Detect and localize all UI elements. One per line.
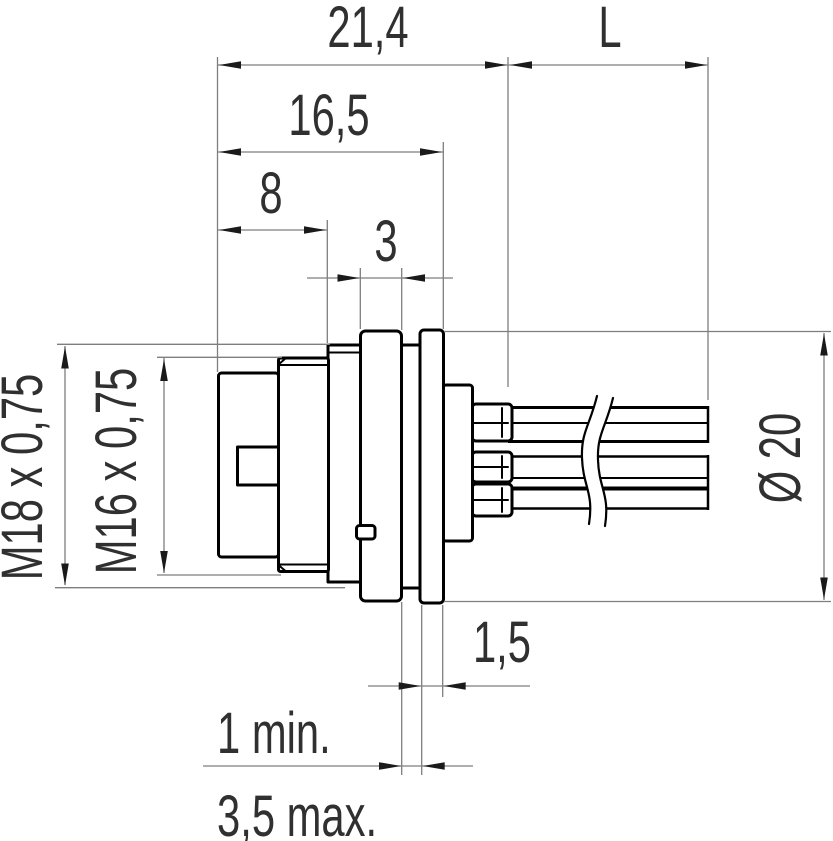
- solder-contacts: [472, 404, 512, 516]
- arrowhead: [403, 274, 425, 282]
- arrowhead: [423, 762, 445, 770]
- flange-slot: [357, 526, 376, 540]
- technical-drawing-canvas: 21,4 L 16,5 8 3 1,5 1 min. 3,5 max. M18 …: [0, 0, 833, 841]
- arrowhead: [444, 682, 466, 690]
- arrowhead: [399, 682, 421, 690]
- arrowhead: [820, 578, 828, 600]
- arrowhead: [61, 564, 69, 586]
- arrowhead: [485, 61, 507, 69]
- dim-label-wire-length: L: [598, 0, 621, 60]
- dim-label-mounting-thread: M18 x 0,75: [0, 374, 55, 581]
- dim-label-overall-depth: 21,4: [327, 0, 408, 60]
- dim-label-panel-max: 3,5 max.: [217, 783, 377, 841]
- coding-key-tab: [238, 447, 279, 485]
- wire-group: [508, 406, 708, 510]
- dim-label-locking-thread: M16 x 0,75: [83, 368, 148, 575]
- arrowhead: [820, 334, 828, 356]
- connector-outline: [219, 330, 709, 603]
- arrowhead: [160, 551, 168, 573]
- rear-body: [443, 385, 473, 541]
- arrowhead: [219, 148, 241, 156]
- dim-label-thread-depth: 8: [259, 160, 282, 225]
- dim-label-panel-min: 1 min.: [217, 700, 331, 765]
- arrowhead: [160, 359, 168, 381]
- dim-label-flange-diameter: Ø 20: [747, 413, 812, 504]
- arrowhead: [219, 61, 241, 69]
- mounting-thread-section: [328, 345, 361, 582]
- arrowhead: [338, 274, 360, 282]
- mounting-flange: [361, 331, 402, 601]
- arrowhead: [219, 226, 241, 234]
- dim-label-flange-thickness: 3: [374, 208, 397, 273]
- arrowhead: [510, 61, 532, 69]
- break-symbol: [582, 396, 613, 526]
- rear-disc: [420, 330, 444, 603]
- arrowhead: [379, 762, 401, 770]
- arrowhead: [61, 347, 69, 369]
- dim-label-front-depth: 16,5: [288, 82, 369, 147]
- arrowhead: [304, 226, 326, 234]
- dim-label-disc-thickness: 1,5: [473, 609, 531, 674]
- locking-thread-section: [279, 358, 329, 572]
- connector-drawing-svg: 21,4 L 16,5 8 3 1,5 1 min. 3,5 max. M18 …: [0, 0, 833, 841]
- arrowhead: [420, 148, 442, 156]
- arrowhead: [685, 61, 707, 69]
